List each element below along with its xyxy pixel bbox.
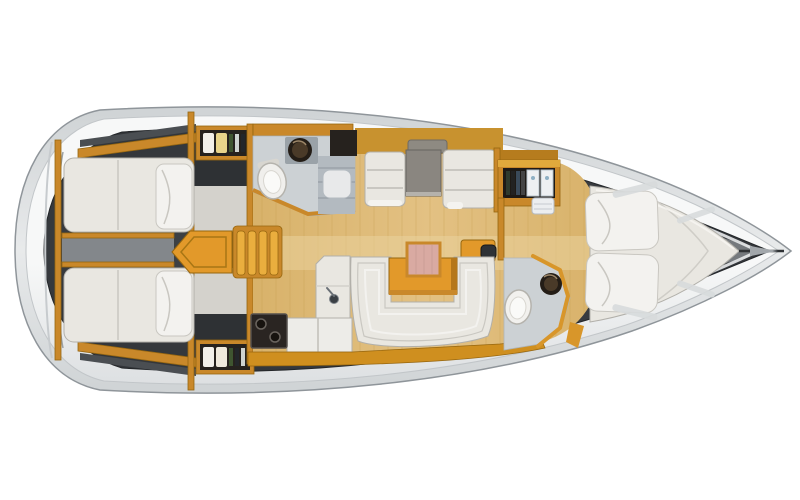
step-tread <box>237 231 245 275</box>
bottle-white-icon <box>235 134 239 152</box>
galley-fridge <box>287 318 352 352</box>
galley-stove <box>251 314 287 348</box>
fwd-head-sink <box>540 273 562 295</box>
bottle-green-icon <box>229 348 233 366</box>
shirt-cream-icon <box>216 347 227 367</box>
aft-head-basin <box>323 170 351 198</box>
book-spine <box>506 171 510 195</box>
aft-divider-trim-bottom <box>62 262 174 267</box>
aft-head-locker <box>330 130 357 156</box>
step-tread <box>270 231 278 275</box>
stove-burner-icon <box>270 332 280 342</box>
card-motif <box>545 176 549 180</box>
book-spine <box>521 171 525 195</box>
salon-table-edge <box>389 290 457 295</box>
bottle-white-icon <box>241 348 245 366</box>
shirt-white-icon <box>203 133 214 153</box>
fwd-head-bulkhead <box>498 198 504 260</box>
nav-settee-left <box>365 152 405 206</box>
companionway-steps <box>233 226 282 278</box>
bottle-green-icon <box>229 134 233 152</box>
salon-table-shadow <box>451 258 457 294</box>
boat-floor-plan <box>0 0 800 500</box>
book-spine <box>516 171 520 195</box>
berth-extension-starboard <box>194 186 252 232</box>
shirt-yellow-icon <box>216 133 227 153</box>
chart-table <box>406 150 441 196</box>
wardrobe-port <box>196 340 254 374</box>
stove-burner-icon <box>256 319 266 329</box>
shelf-card <box>527 170 539 196</box>
aft-pillow-starboard <box>156 164 192 229</box>
shelf-card <box>541 170 553 196</box>
salon-and-galley <box>233 124 602 366</box>
shirt-white-icon <box>203 347 214 367</box>
nav-settee-left-lip <box>368 200 402 206</box>
stern-bulkhead <box>55 140 61 360</box>
galley-counter <box>316 256 350 318</box>
boat-floor-plan-canvas <box>0 0 800 500</box>
v-berth-pillow-top <box>585 191 659 251</box>
chart-table-edge <box>406 192 441 196</box>
aft-pillow-port <box>156 271 192 336</box>
step-tread <box>248 231 256 275</box>
bottle-dark-icon <box>235 348 239 366</box>
card-motif <box>531 176 535 180</box>
aft-divider-trim-top <box>62 233 174 238</box>
aft-head-sink <box>288 138 312 162</box>
nav-settee-right-foot <box>447 202 463 209</box>
bottle-dark-icon <box>241 134 245 152</box>
bookshelf-top-rail <box>498 160 560 167</box>
sink-basin-icon <box>544 277 558 291</box>
step-tread <box>259 231 267 275</box>
wardrobe-starboard <box>196 126 254 160</box>
v-berth-pillow-bottom <box>585 253 659 313</box>
nav-settee-right <box>443 150 496 208</box>
book-spine <box>511 171 515 195</box>
locker-small <box>532 198 554 214</box>
